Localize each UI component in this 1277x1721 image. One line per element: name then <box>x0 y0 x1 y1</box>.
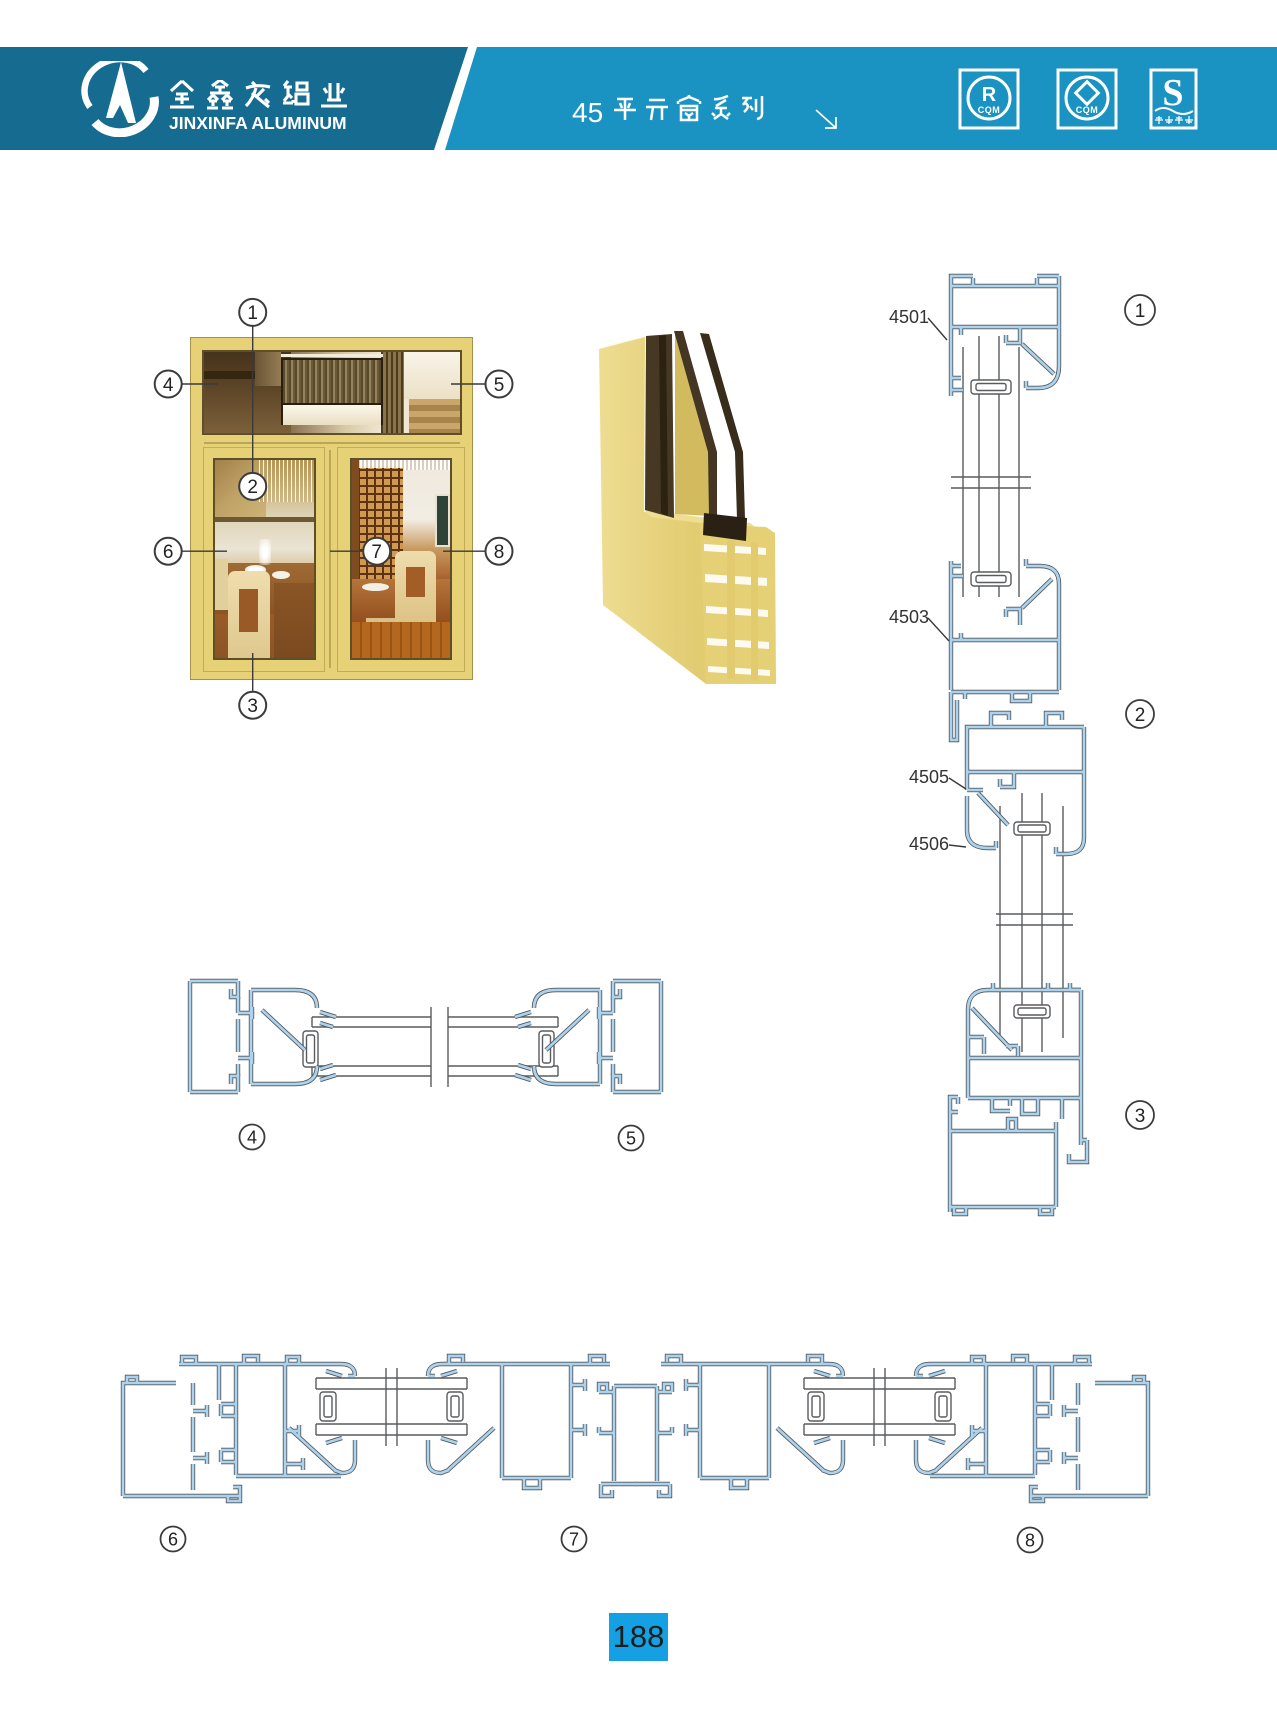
svg-text:8: 8 <box>494 542 505 563</box>
svg-text:7: 7 <box>371 542 382 563</box>
svg-text:4506: 4506 <box>909 834 949 854</box>
svg-text:5: 5 <box>494 375 505 396</box>
svg-text:1: 1 <box>247 303 258 324</box>
svg-text:1: 1 <box>1135 301 1146 322</box>
svg-text:3: 3 <box>1135 1106 1146 1127</box>
svg-text:5: 5 <box>626 1129 636 1149</box>
svg-text:4: 4 <box>163 375 174 396</box>
svg-text:8: 8 <box>1025 1531 1035 1551</box>
svg-text:4503: 4503 <box>889 607 929 627</box>
svg-text:6: 6 <box>163 542 174 563</box>
svg-text:7: 7 <box>569 1530 579 1550</box>
svg-text:6: 6 <box>168 1530 178 1550</box>
svg-text:4: 4 <box>247 1128 257 1148</box>
svg-text:4501: 4501 <box>889 307 929 327</box>
svg-text:2: 2 <box>1135 705 1146 726</box>
svg-text:2: 2 <box>247 477 258 498</box>
svg-text:3: 3 <box>247 696 258 717</box>
svg-text:4505: 4505 <box>909 767 949 787</box>
